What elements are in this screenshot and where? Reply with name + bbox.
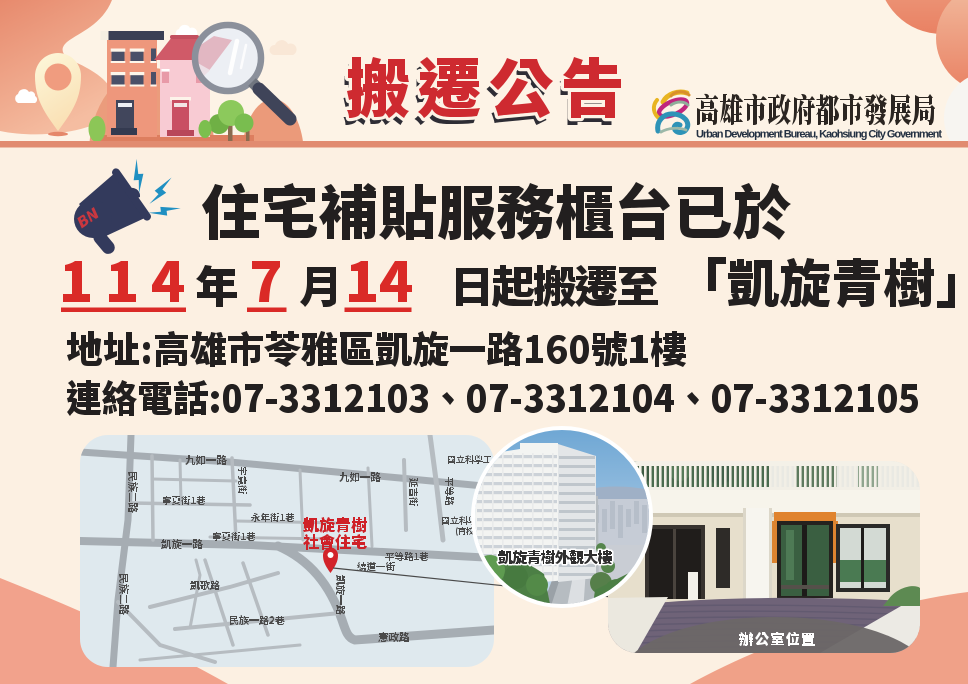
svg-text:Urban Development Bureau, Kaoh: Urban Development Bureau, Kaohsiung City… [696,129,942,141]
